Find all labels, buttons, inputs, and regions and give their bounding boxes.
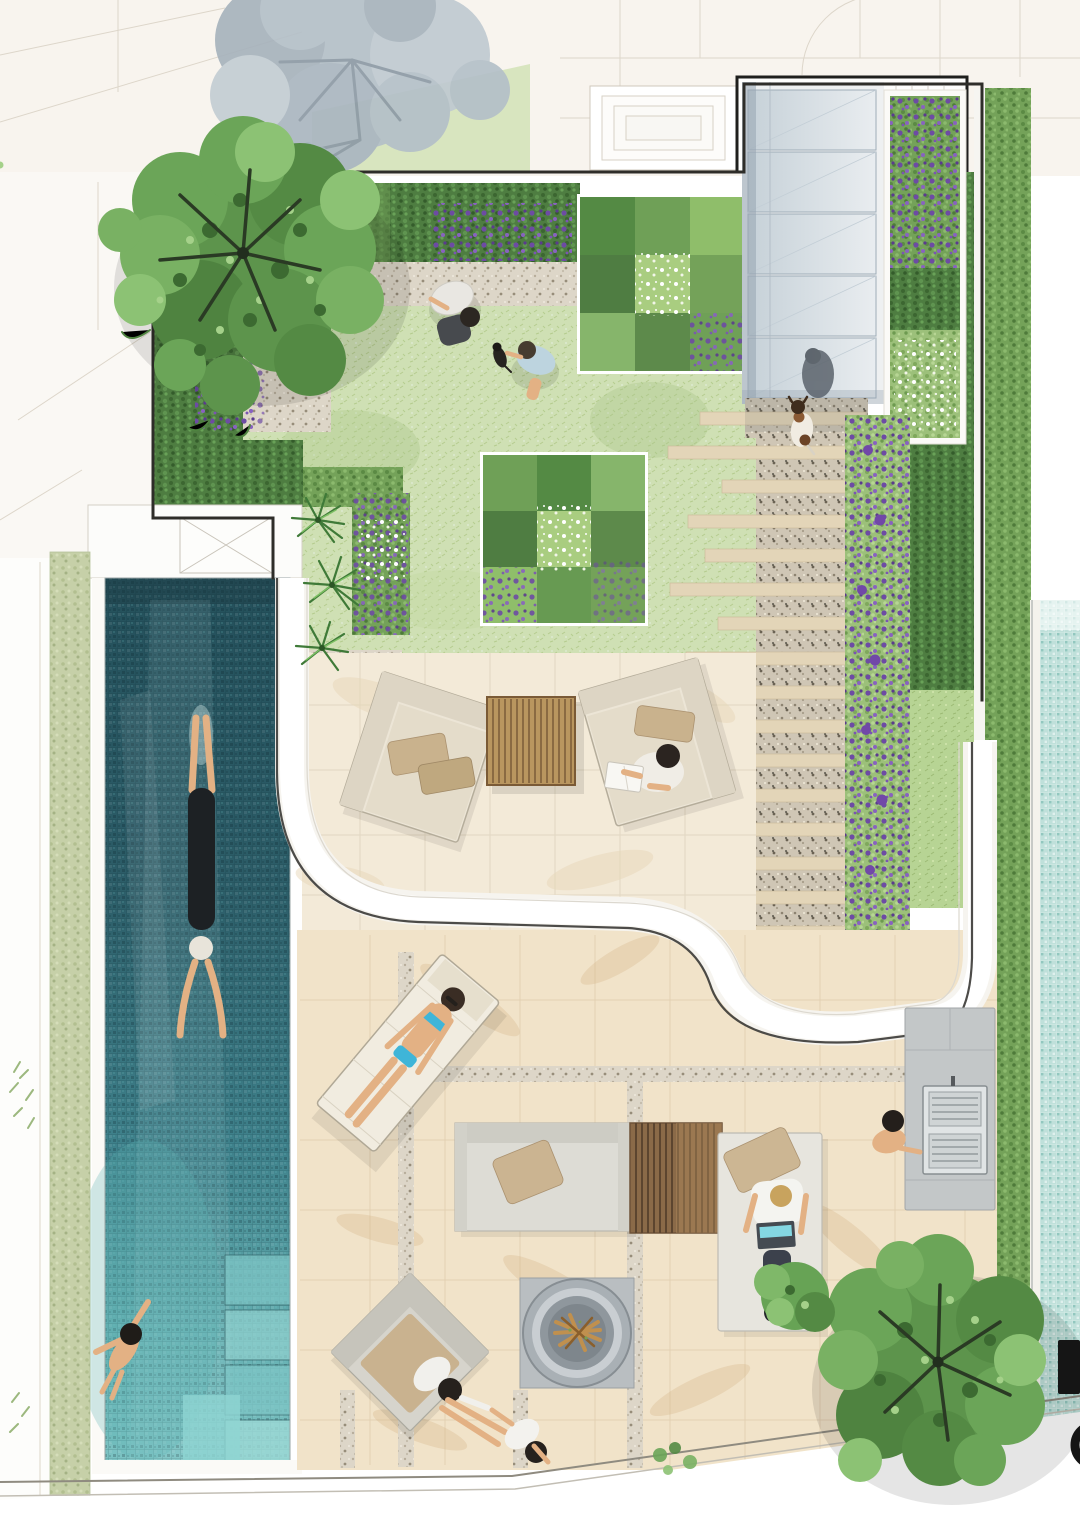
external-steps bbox=[590, 86, 737, 170]
fire-pit bbox=[520, 1278, 634, 1388]
deck-steps-detail bbox=[180, 517, 272, 573]
checkerboard-parterre bbox=[577, 194, 748, 374]
neighbor-margin-west bbox=[0, 558, 52, 1517]
fade bbox=[1040, 600, 1080, 630]
swimming-pool bbox=[70, 578, 302, 1474]
neighbor-hedge-low bbox=[997, 740, 1030, 1300]
entry-canopy bbox=[742, 82, 884, 404]
canopy-planter bbox=[884, 90, 966, 444]
hedge-band-pool bbox=[173, 440, 303, 507]
neighbor-hedge-east bbox=[985, 88, 1031, 740]
outdoor-sofa bbox=[455, 1123, 636, 1237]
slatted-table bbox=[630, 1123, 722, 1233]
pool-coping-south bbox=[92, 1460, 302, 1474]
hedge-west bbox=[50, 552, 90, 1504]
neighbor-pool bbox=[1040, 600, 1080, 1428]
laptop bbox=[756, 1221, 796, 1250]
site-plan-canvas bbox=[0, 0, 1080, 1517]
white-flowers bbox=[356, 520, 406, 580]
coffee-table bbox=[487, 697, 584, 794]
island-planter bbox=[480, 452, 648, 626]
purple-flowers bbox=[430, 203, 572, 261]
site-plan-page bbox=[0, 0, 1080, 1517]
